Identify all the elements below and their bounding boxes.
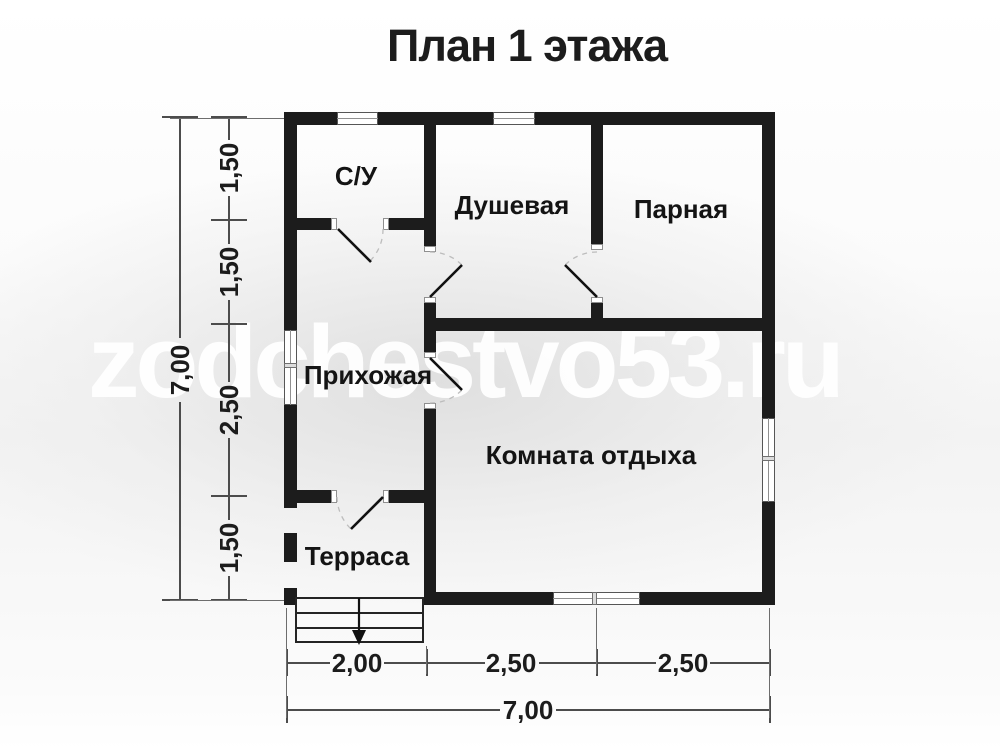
dim-label-bottom-3: 2,50: [658, 650, 709, 676]
stairs-arrow-icon: [352, 598, 366, 645]
room-label-shower: Душевая: [455, 192, 570, 218]
room-label-terrace: Терраса: [305, 543, 410, 569]
door-leaf-lounge: [430, 358, 462, 390]
door-leaf-steam: [565, 265, 597, 297]
room-label-steam: Парная: [634, 196, 728, 222]
door-swing-arc: [370, 229, 383, 261]
door-leaf-su: [338, 229, 371, 262]
dim-label-bottom-1: 2,00: [332, 650, 383, 676]
dim-label-left-1: 1,50: [216, 143, 242, 194]
floor-plan-page: zodchestvo53.ru План 1 этажа: [0, 0, 1000, 750]
dim-label-left-2: 1,50: [216, 247, 242, 298]
doors-and-arrow-layer: [0, 0, 1000, 750]
door-swing-arc: [430, 390, 462, 403]
dim-label-bottom-total: 7,00: [503, 697, 554, 723]
door-swing-arc: [430, 252, 462, 265]
dim-label-left-3: 2,50: [216, 385, 242, 436]
dim-label-left-total: 7,00: [167, 345, 193, 396]
room-label-su: С/У: [335, 163, 377, 189]
door-swing-arc: [565, 252, 597, 265]
dim-label-left-4: 1,50: [216, 523, 242, 574]
room-label-lounge: Комната отдыха: [486, 442, 696, 468]
room-label-hall: Прихожая: [304, 362, 432, 388]
door-leaf-terrace: [351, 497, 383, 529]
page-title: План 1 этажа: [387, 20, 667, 72]
door-swing-arc: [337, 497, 351, 529]
door-leaf-shower: [430, 265, 462, 297]
dim-label-bottom-2: 2,50: [486, 650, 537, 676]
